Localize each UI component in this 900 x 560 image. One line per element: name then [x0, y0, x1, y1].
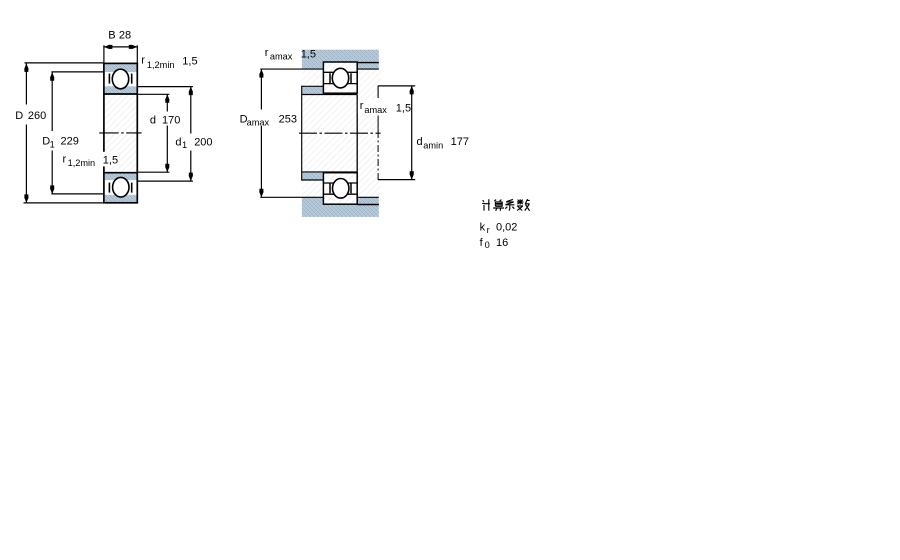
svg-text:253: 253	[279, 114, 297, 126]
svg-text:1: 1	[50, 140, 55, 150]
svg-text:0,02: 0,02	[496, 222, 517, 234]
svg-text:d: d	[175, 136, 181, 148]
svg-text:r: r	[63, 154, 67, 166]
svg-text:170: 170	[162, 114, 180, 126]
svg-text:amax: amax	[270, 52, 293, 62]
svg-text:B: B	[108, 30, 115, 42]
svg-text:1,2min: 1,2min	[147, 60, 175, 70]
svg-text:r: r	[141, 55, 145, 67]
svg-text:d: d	[417, 136, 423, 148]
svg-text:260: 260	[28, 110, 46, 122]
svg-text:1,5: 1,5	[301, 48, 316, 60]
svg-text:1,2min: 1,2min	[68, 158, 96, 168]
svg-text:1: 1	[182, 140, 187, 150]
svg-text:k: k	[480, 222, 486, 234]
svg-text:229: 229	[61, 136, 79, 148]
svg-text:1,5: 1,5	[396, 102, 411, 114]
svg-text:0: 0	[485, 240, 490, 250]
svg-text:r: r	[360, 100, 364, 112]
svg-text:d: d	[150, 114, 156, 126]
svg-text:28: 28	[119, 30, 131, 42]
svg-text:amax: amax	[364, 105, 387, 115]
svg-text:177: 177	[451, 136, 469, 148]
svg-text:1,5: 1,5	[103, 154, 118, 166]
svg-text:200: 200	[194, 136, 212, 148]
svg-text:16: 16	[496, 237, 508, 249]
svg-text:r: r	[487, 225, 490, 235]
svg-text:D: D	[15, 110, 23, 122]
svg-text:r: r	[265, 47, 269, 59]
svg-text:amin: amin	[423, 140, 443, 150]
svg-text:amax: amax	[247, 118, 270, 128]
svg-text:1,5: 1,5	[182, 55, 197, 67]
